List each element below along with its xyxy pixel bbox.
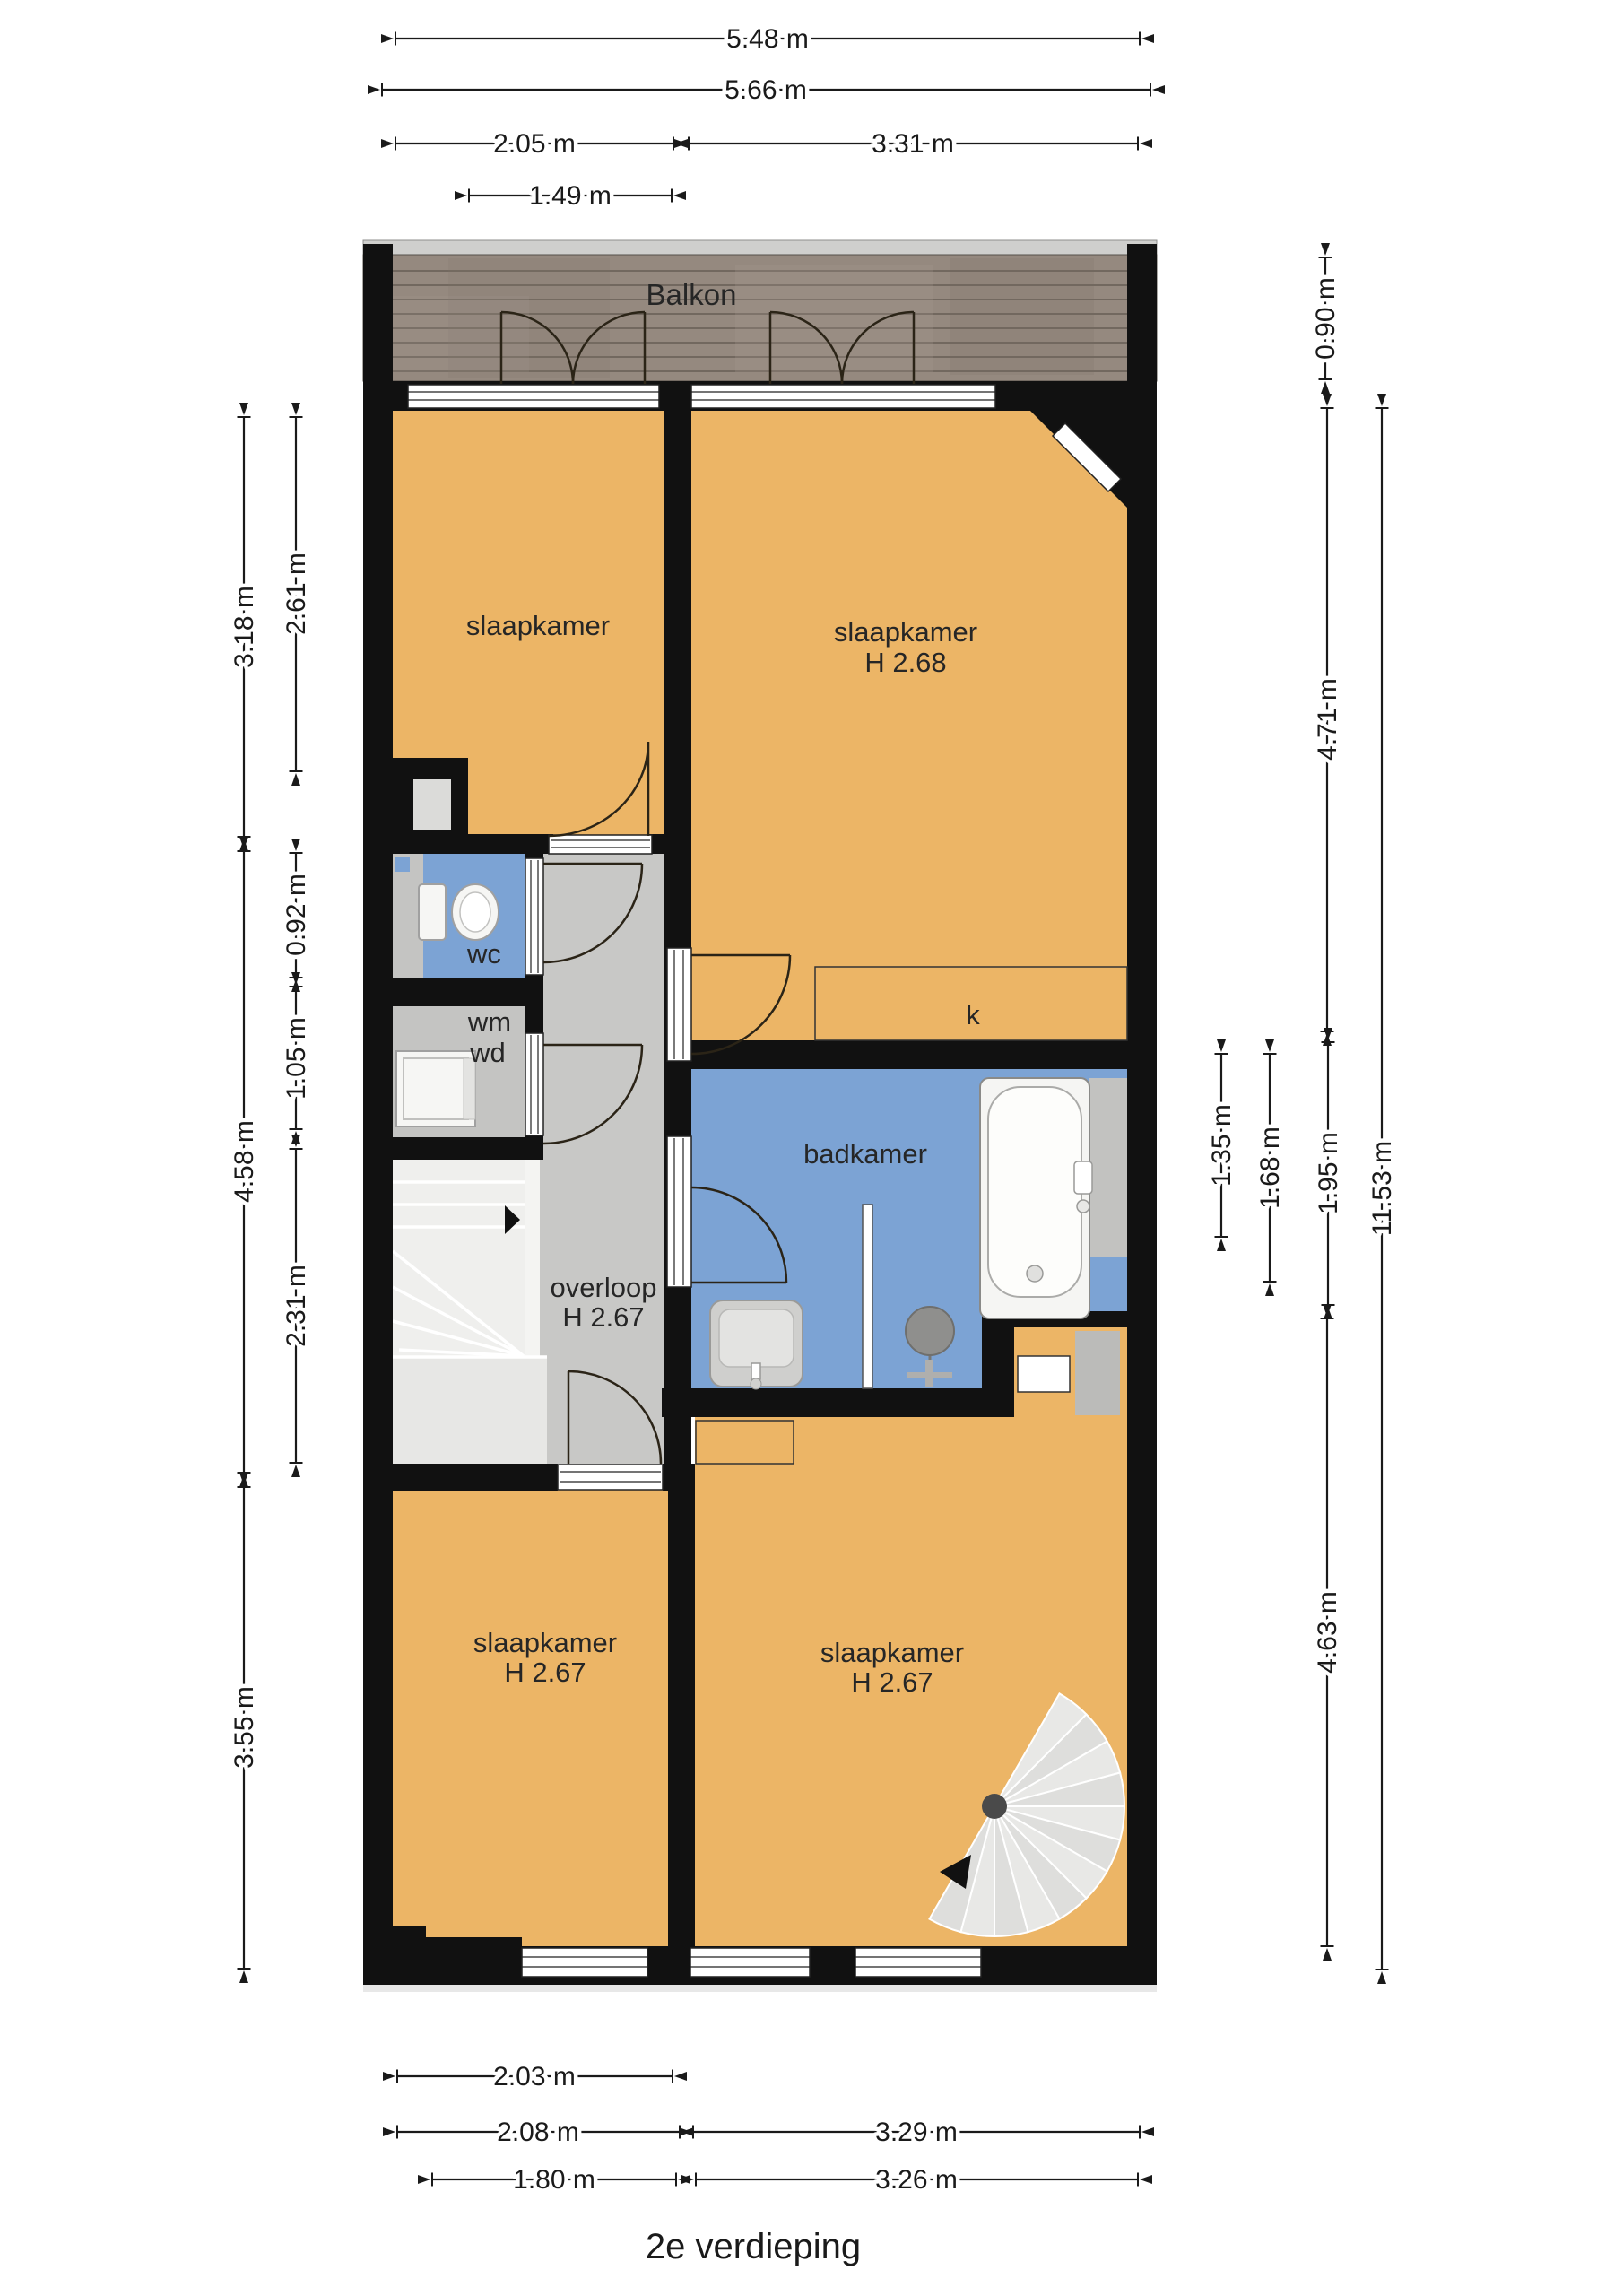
dimensions-left: 3.18 m 2.61 m 0.92 m 1.05 m 4.58 m 2.31 … (230, 417, 311, 1969)
wall-bedroom-tl-bottom (387, 834, 553, 854)
label-bedroom-tr-height: H 2.68 (864, 647, 946, 678)
label-wd: wd (469, 1037, 506, 1068)
dimension-label: 11.53 m (1367, 1141, 1397, 1236)
shower-screen (863, 1205, 872, 1388)
dimension-label: 0.90 m (1311, 277, 1341, 360)
dimension: 2.05 m (395, 129, 673, 159)
dimensions-bottom: 2.03 m 2.08 m 3.29 m 1.80 m 3.26 m (397, 2062, 1140, 2195)
doorframe-bedroom-tr (667, 948, 691, 1061)
label-landing: overloop (551, 1272, 657, 1303)
label-landing-height: H 2.67 (562, 1301, 644, 1333)
balcony-railing (363, 240, 1157, 255)
label-wm: wm (467, 1006, 511, 1038)
window-top-right (691, 385, 995, 408)
room-bedroom-bottom-left (387, 1485, 671, 1952)
balcony: Balkon (363, 240, 1157, 381)
dimension: 4.71 m (1313, 408, 1342, 1031)
window-bottom-1 (522, 1948, 647, 1977)
dimension-label: 5.66 m (725, 75, 807, 105)
dimension-label: 1.80 m (513, 2165, 595, 2195)
toilet-icon (419, 884, 499, 940)
dimension: 2.61 m (282, 417, 311, 771)
dimension: 3.26 m (696, 2165, 1138, 2195)
bathroom-hatch (1018, 1356, 1070, 1392)
dimension-label: 1.35 m (1207, 1104, 1237, 1187)
dimension-label: 4.63 m (1313, 1591, 1342, 1674)
dimension-label: 1.68 m (1255, 1126, 1285, 1209)
window-top-left (408, 385, 659, 408)
wall-wc-laundry-divider (393, 978, 525, 1006)
window-bottom-3 (855, 1948, 981, 1977)
building-shadow (363, 1985, 1157, 1992)
label-bathroom: badkamer (803, 1138, 927, 1170)
washbasin-icon (710, 1300, 803, 1389)
dimension: 4.58 m (230, 851, 259, 1473)
dimension: 3.18 m (230, 417, 259, 837)
label-bedroom-bl-height: H 2.67 (504, 1657, 586, 1688)
dimension-label: 2.05 m (493, 129, 576, 159)
dimension-label: 3.18 m (230, 586, 259, 668)
dimension: 3.55 m (230, 1487, 259, 1969)
dimension-label: 1.05 m (282, 1017, 311, 1100)
dimension: 3.29 m (693, 2118, 1140, 2147)
floor-title: 2e verdieping (646, 2227, 861, 2266)
dimension-label: 2.08 m (497, 2118, 579, 2147)
dimension-label: 2.61 m (282, 552, 311, 635)
label-bedroom-br-height: H 2.67 (851, 1666, 933, 1698)
wall-bedrooms-divider-top (664, 411, 691, 834)
wall-bathroom-bottom-left (662, 1388, 1014, 1417)
wc-wall-niche (395, 857, 410, 872)
label-wc: wc (466, 938, 501, 970)
wall-landing-bottom (363, 1464, 558, 1491)
dimension: 0.92 m (282, 853, 311, 978)
dimensions-right: 0.90 m 4.71 m 1.35 m 1.68 m 1.95 m 4.63 … (1207, 257, 1397, 1970)
wall-bathroom-step (982, 1311, 1014, 1417)
wall-bedrooms-divider-bottom (668, 1485, 695, 1952)
dimension: 5.66 m (382, 75, 1150, 105)
doorframe-bedroom-tl (549, 835, 652, 854)
dimension: 1.95 m (1314, 1042, 1343, 1305)
dimension-label: 5.48 m (726, 24, 809, 54)
dimensions-top: 5.48 m 5.66 m 2.05 m 3.31 m 1.49 m (382, 24, 1150, 211)
dimension-label: 3.55 m (230, 1686, 259, 1769)
balcony-post-right (1127, 244, 1157, 381)
room-bedroom-top-right (686, 404, 1133, 1046)
dimension: 0.90 m (1311, 257, 1341, 379)
balcony-post-left (363, 244, 393, 381)
dimension-label: 1.49 m (529, 181, 612, 211)
room-landing-hall (540, 854, 664, 1464)
label-bedroom-bl: slaapkamer (473, 1627, 617, 1658)
washing-machine-icon (396, 1051, 475, 1126)
balcony-label: Balkon (647, 278, 737, 311)
dimension-label: 4.58 m (230, 1120, 259, 1203)
dimension-label: 2.03 m (493, 2062, 576, 2092)
staircase-landing (393, 1357, 547, 1464)
dimension-label: 2.31 m (282, 1265, 311, 1347)
doorframe-laundry (525, 1033, 543, 1135)
wall-outer-right (1127, 381, 1157, 1985)
dimension-label: 1.95 m (1314, 1132, 1343, 1214)
label-bedroom-tl: slaapkamer (466, 610, 610, 641)
dimension: 1.05 m (282, 987, 311, 1129)
doorframe-wc (525, 858, 543, 975)
wall-outer-left (363, 381, 393, 1985)
dimension: 3.31 m (689, 129, 1138, 159)
dimension: 2.03 m (397, 2062, 673, 2092)
dimension-label: 3.26 m (875, 2165, 958, 2195)
dimension: 1.49 m (469, 181, 672, 211)
window-bottom-2 (690, 1948, 810, 1977)
dimension: 1.68 m (1255, 1054, 1285, 1282)
dimension-label: 3.31 m (872, 129, 954, 159)
dimension-label: 0.92 m (282, 874, 311, 956)
label-bedroom-br: slaapkamer (820, 1637, 964, 1668)
wall-bottom-left-step (392, 1926, 426, 1950)
closet-bedroom-br-right (1075, 1331, 1120, 1415)
dimension: 1.35 m (1207, 1054, 1237, 1237)
label-bedroom-tr: slaapkamer (834, 616, 977, 648)
spiral-stairs-post (982, 1794, 1007, 1819)
wall-laundry-stairs-divider (393, 1137, 525, 1160)
dimension: 1.80 m (432, 2165, 676, 2195)
doorframe-bathroom (667, 1136, 691, 1287)
bathtub-ledge (1089, 1078, 1127, 1257)
dimension: 5.48 m (395, 24, 1140, 54)
label-closet-k: k (966, 999, 980, 1031)
doorframe-bedroom-br (558, 1465, 663, 1490)
dimension: 4.63 m (1313, 1318, 1342, 1946)
floor-plan-drawing: Balkon (0, 0, 1623, 2296)
dimension-label: 3.29 m (875, 2118, 958, 2147)
wall-bottom-left-thick (363, 1937, 522, 1985)
dimension-label: 4.71 m (1313, 678, 1342, 761)
dimension: 2.31 m (282, 1149, 311, 1463)
staircase-area (393, 1160, 525, 1359)
closet-bedroom-tl-interior (413, 779, 451, 830)
dimension: 11.53 m (1367, 408, 1397, 1970)
dimension: 2.08 m (397, 2118, 680, 2147)
floor-plan-page: Balkon (0, 0, 1623, 2296)
